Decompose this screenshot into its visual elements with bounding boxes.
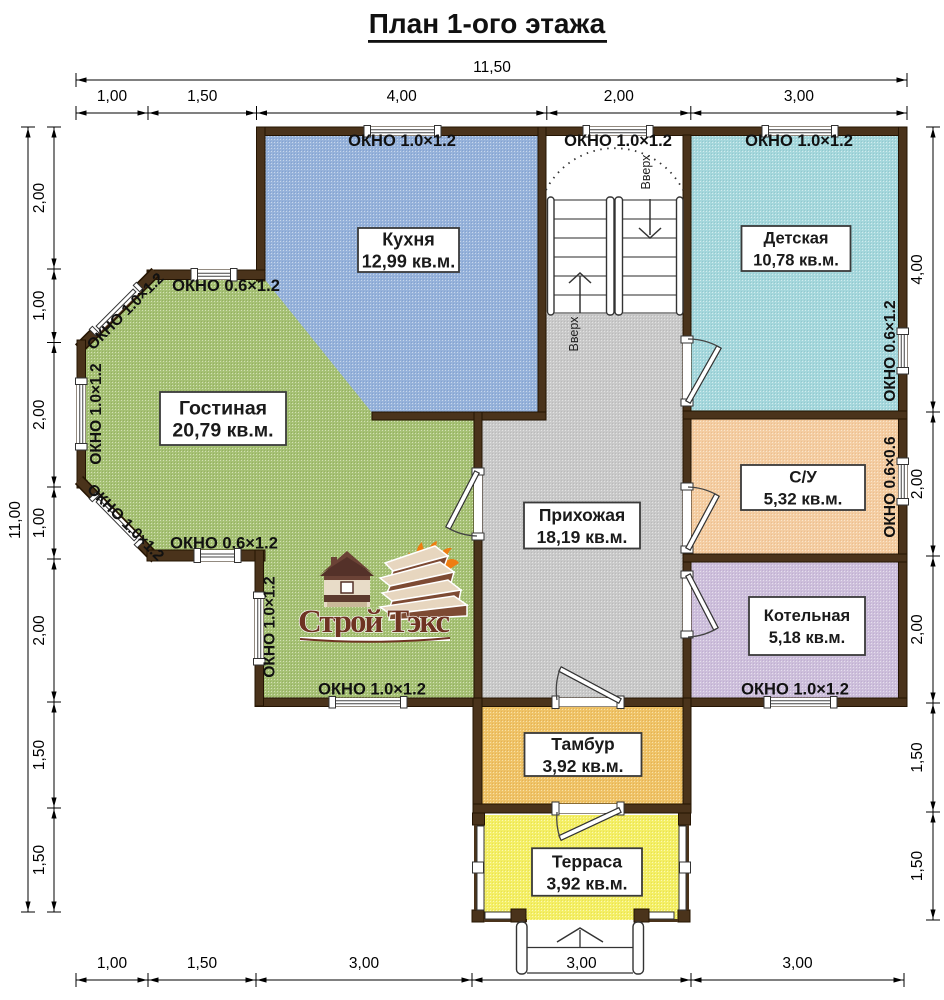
svg-text:ОКНО 1.0×1.2: ОКНО 1.0×1.2 (348, 132, 456, 150)
svg-text:ОКНО 1.0×1.2: ОКНО 1.0×1.2 (741, 680, 849, 698)
svg-text:Детская: Детская (763, 229, 828, 247)
svg-text:3,92 кв.м.: 3,92 кв.м. (546, 873, 627, 893)
svg-text:ОКНО 1.0×1.2: ОКНО 1.0×1.2 (564, 132, 672, 150)
svg-text:1,50: 1,50 (909, 742, 926, 773)
svg-text:4,00: 4,00 (387, 88, 418, 105)
svg-text:10,78 кв.м.: 10,78 кв.м. (753, 251, 839, 269)
svg-text:2,00: 2,00 (909, 469, 926, 500)
svg-text:Прихожая: Прихожая (539, 505, 625, 525)
svg-text:ОКНО 0.6×1.2: ОКНО 0.6×1.2 (170, 534, 278, 552)
svg-text:2,00: 2,00 (31, 615, 48, 646)
svg-text:3,00: 3,00 (349, 955, 380, 972)
svg-text:ОКНО 0.6×1.2: ОКНО 0.6×1.2 (882, 300, 899, 401)
svg-text:2,00: 2,00 (909, 614, 926, 645)
svg-text:3,00: 3,00 (782, 955, 813, 972)
svg-text:3,00: 3,00 (784, 88, 815, 105)
svg-text:1,50: 1,50 (909, 851, 926, 882)
svg-text:ОКНО 1.0×1.2: ОКНО 1.0×1.2 (262, 576, 279, 677)
svg-text:1,00: 1,00 (31, 290, 48, 321)
svg-text:ОКНО 1.0×1.2: ОКНО 1.0×1.2 (318, 680, 426, 698)
svg-text:5,18 кв.м.: 5,18 кв.м. (769, 629, 845, 647)
svg-text:2,00: 2,00 (31, 399, 48, 430)
svg-text:11,00: 11,00 (7, 501, 24, 539)
svg-text:Терраса: Терраса (552, 851, 623, 871)
svg-text:1,50: 1,50 (187, 955, 218, 972)
svg-text:ОКНО 0.6×1.2: ОКНО 0.6×1.2 (172, 277, 280, 295)
svg-text:4,00: 4,00 (909, 254, 926, 285)
svg-text:План 1-ого этажа: План 1-ого этажа (369, 8, 606, 39)
svg-text:Вверх: Вверх (567, 316, 581, 352)
svg-text:1,50: 1,50 (31, 740, 48, 771)
svg-text:Вверх: Вверх (639, 154, 653, 190)
svg-text:1,00: 1,00 (97, 88, 128, 105)
svg-text:20,79 кв.м.: 20,79 кв.м. (172, 420, 273, 442)
svg-text:3,92 кв.м.: 3,92 кв.м. (542, 756, 623, 776)
svg-text:ОКНО 1.0×1.2: ОКНО 1.0×1.2 (745, 132, 853, 150)
svg-text:1,00: 1,00 (31, 508, 48, 539)
svg-text:11,50: 11,50 (473, 59, 511, 76)
svg-text:1,50: 1,50 (31, 845, 48, 876)
svg-text:ОКНО 0.6×0.6: ОКНО 0.6×0.6 (882, 436, 899, 538)
svg-text:1,00: 1,00 (97, 955, 128, 972)
svg-text:Гостиная: Гостиная (179, 398, 267, 420)
svg-text:3,00: 3,00 (566, 955, 597, 972)
svg-text:2,00: 2,00 (604, 88, 635, 105)
svg-text:Кухня: Кухня (382, 230, 435, 250)
svg-text:18,19 кв.м.: 18,19 кв.м. (537, 527, 628, 547)
svg-text:Котельная: Котельная (764, 607, 850, 625)
svg-text:Строй Тэкс: Строй Тэкс (298, 604, 450, 640)
svg-text:ОКНО 1.0×1.2: ОКНО 1.0×1.2 (88, 363, 105, 464)
svg-text:1,50: 1,50 (187, 88, 218, 105)
svg-text:5,32 кв.м.: 5,32 кв.м. (764, 490, 843, 509)
svg-text:2,00: 2,00 (31, 183, 48, 214)
svg-text:12,99 кв.м.: 12,99 кв.м. (362, 252, 455, 272)
svg-text:С/У: С/У (789, 468, 817, 487)
svg-text:Тамбур: Тамбур (551, 734, 614, 754)
